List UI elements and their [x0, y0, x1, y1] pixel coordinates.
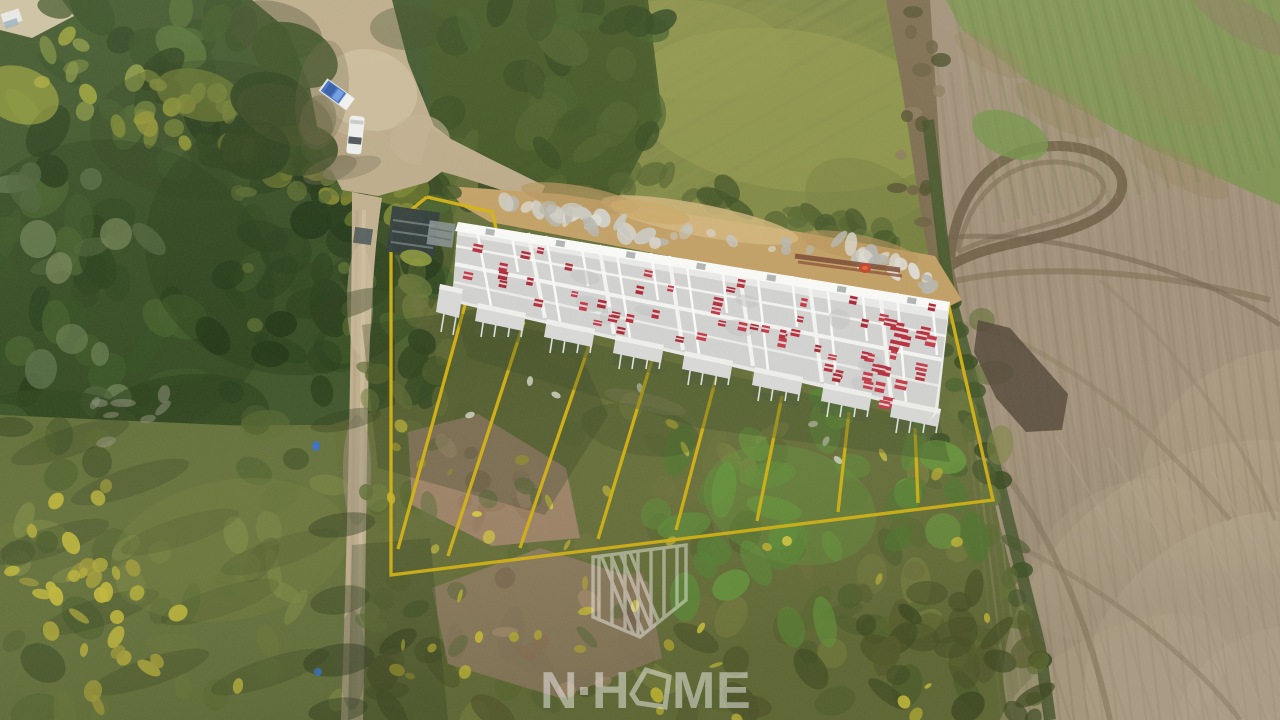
svg-text:N: N: [540, 662, 578, 720]
svg-text:E: E: [716, 662, 751, 720]
svg-text:M: M: [672, 662, 715, 720]
svg-text:H: H: [592, 662, 630, 720]
